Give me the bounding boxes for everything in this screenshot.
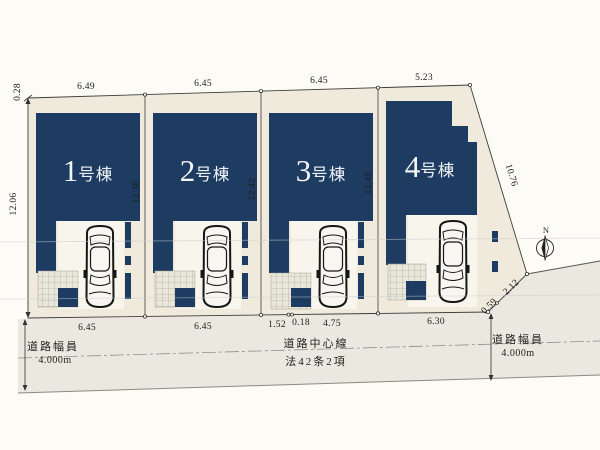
dim-boundary-3-4: 12.40: [364, 172, 374, 195]
road-width-value-right: 4.000m: [501, 348, 534, 359]
dim-boundary-1-2: 12.38: [132, 181, 142, 204]
dim-bottom-lot3-b: 0.18: [292, 318, 310, 328]
car-icon: [317, 226, 350, 307]
dim-top-lot1: 6.49: [77, 82, 95, 92]
road-width-label-right: 道路幅員: [492, 332, 544, 346]
compass-icon: N: [537, 225, 554, 261]
dim-boundary-2-3: 12.42: [248, 178, 258, 201]
dim-bottom-lot2: 6.45: [194, 322, 212, 332]
compass-north-label: N: [543, 225, 549, 235]
dim-bottom-lot3-c: 4.75: [323, 319, 341, 329]
dim-top-lot4: 5.23: [415, 73, 433, 83]
dim-top-lot3: 6.45: [310, 76, 328, 86]
dim-bottom-lot1: 6.45: [78, 323, 96, 333]
car-icon: [201, 226, 234, 307]
site-plan-page: 1号棟 2号棟 3号棟 4号棟: [0, 0, 600, 450]
dim-bottom-lot4: 6.30: [427, 317, 445, 327]
car-icon: [437, 221, 470, 302]
dim-right-slant: 10.76: [503, 163, 519, 188]
dim-left-edge: 12.06: [9, 193, 19, 216]
site-plan-drawing: 1号棟 2号棟 3号棟 4号棟: [0, 0, 600, 450]
road-center-line-label: 道路中心線: [284, 336, 349, 350]
road-width-label-left: 道路幅員: [27, 339, 79, 353]
dim-top-lot2: 6.45: [194, 79, 212, 89]
road-law-label: 法42条2項: [285, 354, 347, 368]
dim-left-top: 0.28: [13, 83, 23, 101]
car-icon: [84, 226, 117, 307]
road-width-value-left: 4.000m: [38, 355, 71, 366]
dim-bottom-lot3-a: 1.52: [268, 320, 286, 330]
